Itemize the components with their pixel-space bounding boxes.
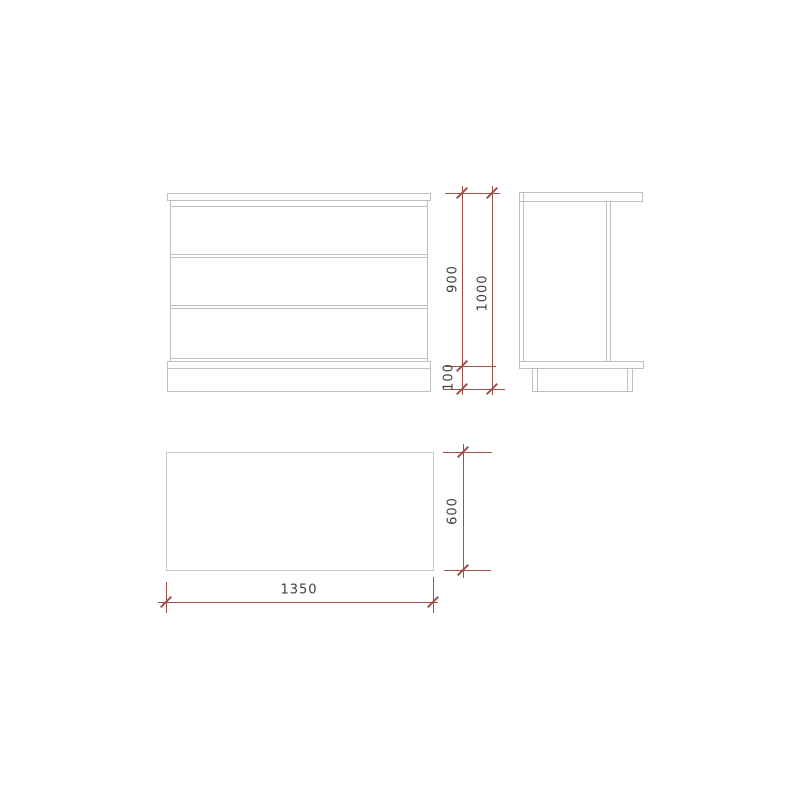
front-interior-top-line [171,206,427,207]
extension-line-width-right [433,577,434,613]
side-back-panel [519,201,524,361]
front-body-sides [170,201,428,361]
extension-line-width-left [166,582,167,613]
dimension-label-depth: 600 [446,497,461,525]
side-plinth-inner-right-line [627,369,628,391]
side-plinth [532,368,633,392]
dimension-line-1000 [492,186,493,395]
dimension-line-600 [463,444,464,578]
top-view-outline [166,452,434,571]
side-front-panel [606,201,611,361]
dimension-label-width: 1350 [280,583,317,598]
side-plinth-inner-left-line [537,369,538,391]
front-plinth [167,368,431,392]
extension-line-depth-bottom [444,570,491,571]
technical-drawing-canvas: 900 1000 100 600 1350 [0,0,800,800]
front-drawer-divider-2 [171,305,427,309]
dimension-label-overall-height: 1000 [476,274,491,311]
front-drawer-divider-1 [171,254,427,258]
side-top-panel-joint-line [523,193,524,201]
dimension-label-body-height: 900 [446,265,461,293]
front-interior-bottom-line [171,358,427,359]
dimension-line-1350 [158,602,438,603]
extension-line-depth-top [443,452,492,453]
dimension-label-plinth-height: 100 [442,363,457,391]
side-top-panel [519,192,643,202]
front-top-panel [167,193,431,201]
